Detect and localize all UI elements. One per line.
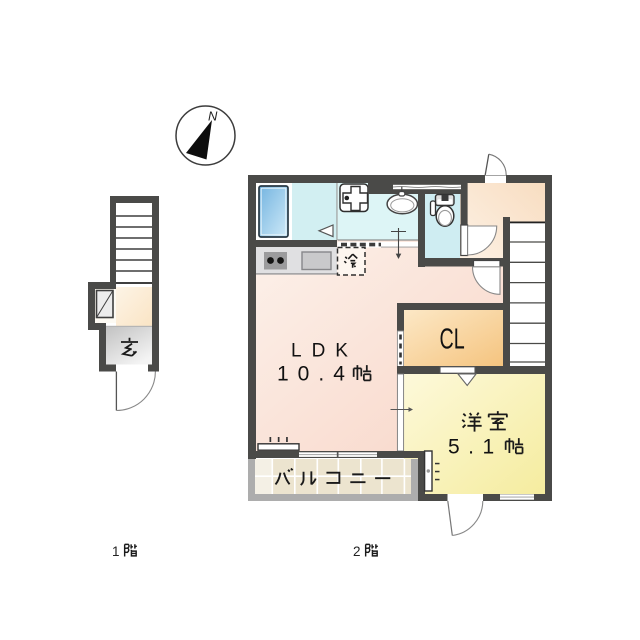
svg-text:LDK: LDK: [291, 341, 358, 362]
svg-text:5.1: 5.1: [448, 436, 503, 459]
svg-text:N: N: [208, 109, 218, 124]
svg-text:10.4: 10.4: [277, 363, 354, 386]
svg-text:1: 1: [112, 544, 120, 559]
svg-text:2: 2: [353, 544, 361, 559]
svg-text:CL: CL: [440, 324, 465, 356]
